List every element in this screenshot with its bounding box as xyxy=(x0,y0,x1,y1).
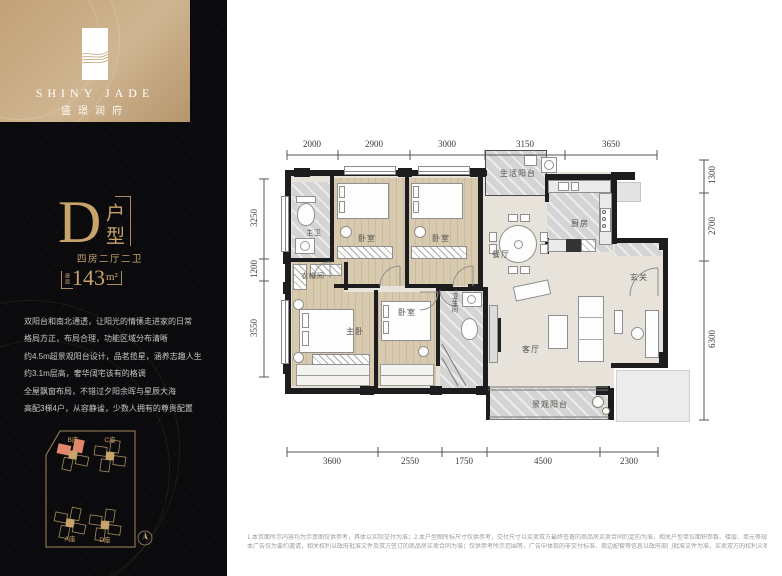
wall-segment xyxy=(374,290,378,388)
area-unit: m² xyxy=(106,271,118,283)
pillow-icon xyxy=(339,186,345,198)
wall-segment xyxy=(436,290,440,366)
chair-icon xyxy=(540,232,548,242)
dim-bottom-4: 4500 xyxy=(527,456,559,466)
brand-name-en: SHINY JADE xyxy=(0,86,190,101)
dim-top-2: 2900 xyxy=(358,139,390,149)
dim-right-2: 2700 xyxy=(707,210,717,242)
kitchen-sink-icon xyxy=(571,182,579,191)
unit-letter: D xyxy=(58,192,101,252)
wall-column xyxy=(470,168,486,177)
wall-column xyxy=(283,282,291,294)
dim-top-3: 3000 xyxy=(431,139,463,149)
brand-logo-icon xyxy=(82,28,108,80)
decor-bracket xyxy=(61,271,62,289)
ceiling-fan-icon xyxy=(414,226,426,238)
room-label-dining: 餐厅 xyxy=(492,249,510,260)
wardrobe-icon xyxy=(337,246,393,259)
unit-layout: 四房二厅二卫 xyxy=(77,251,143,265)
wall-segment xyxy=(478,176,483,288)
wall-column xyxy=(611,172,635,180)
window xyxy=(281,196,289,252)
toilet-icon xyxy=(297,203,315,226)
chair-icon xyxy=(540,244,548,254)
dim-right-3: 6300 xyxy=(707,323,717,355)
dim-bottom-2: 2550 xyxy=(394,456,426,466)
building-label-C: C座 xyxy=(100,434,120,444)
room-label-kitchen: 厨房 xyxy=(571,218,589,229)
burner-icon xyxy=(602,210,606,214)
dim-top-1: 2000 xyxy=(296,139,328,149)
counter-hatch xyxy=(581,239,596,252)
area-value: 143 xyxy=(72,265,105,291)
wall-segment xyxy=(483,287,488,388)
room-label-master-bath: 主卫 xyxy=(306,228,322,238)
basin-icon xyxy=(524,155,537,166)
description-line: 全屋飘窗布局，不错过夕阳余晖与星辰大海 xyxy=(24,383,209,400)
area-prefix: 建面 xyxy=(64,273,71,285)
pillow-icon xyxy=(413,201,419,213)
description: 双阳台和南北通透，让阳光的情愫走进家的日常 格局方正，布局合理，功能区域分布清晰… xyxy=(24,313,209,417)
wall-segment xyxy=(287,258,331,262)
pillow-icon xyxy=(302,313,309,328)
dim-top-4: 3150 xyxy=(509,139,541,149)
room-label-living: 客厅 xyxy=(522,344,540,355)
ceiling-fan-icon xyxy=(418,346,429,357)
room-label-master-bedroom: 主卧 xyxy=(346,326,364,337)
description-line: 约4.5m超景观阳台设计，品茗揽星，涵养志趣人生 xyxy=(24,348,209,365)
tv-cabinet-icon xyxy=(489,305,498,363)
wall-column xyxy=(596,386,610,395)
decor-bracket xyxy=(115,196,131,197)
entry-cabinet xyxy=(615,243,662,256)
description-line: 双阳台和南北通透，让阳光的情愫走进家的日常 xyxy=(24,313,209,330)
dining-plate-icon xyxy=(514,240,523,249)
decor-bracket xyxy=(121,271,122,285)
nightstand-icon xyxy=(293,299,304,310)
chair-icon xyxy=(508,214,518,222)
disclaimer-line-1: 1.本页面所示内容均为示意图仅供参考，具体以实际交付为准；2.本户型图所标尺寸仅… xyxy=(247,534,767,543)
brand-name-cn: 盛璟润府 xyxy=(0,102,190,117)
pillow-icon xyxy=(383,321,389,334)
window xyxy=(344,166,396,175)
dim-bottom-3: 1750 xyxy=(448,456,480,466)
window xyxy=(418,166,470,175)
wall-column xyxy=(476,386,490,395)
wall-column xyxy=(430,386,442,395)
burner-icon xyxy=(602,224,606,228)
wall-column xyxy=(659,238,668,250)
wall-segment xyxy=(405,176,409,288)
room-label-bedroom-1: 卧室 xyxy=(358,233,376,244)
sidebar: SHINY JADE 盛璟润府 D 户型 四房二厅二卫 建面 143 m² 双阳… xyxy=(0,0,227,576)
sofa-cushion-line xyxy=(578,317,604,318)
sofa-icon xyxy=(578,296,604,362)
tv-icon xyxy=(498,318,501,352)
wall-segment xyxy=(285,388,488,394)
building-label-D: D座 xyxy=(95,534,115,544)
desk-icon xyxy=(645,310,659,358)
ceiling-fan-icon xyxy=(340,226,352,238)
plant-icon xyxy=(602,407,610,415)
sink-basin-icon xyxy=(300,241,310,251)
wall-segment xyxy=(334,284,380,288)
sofa-cushion-line xyxy=(578,339,604,340)
decor-bracket xyxy=(130,196,131,246)
plant-icon xyxy=(592,396,604,408)
bay-window xyxy=(296,364,370,386)
toilet-icon xyxy=(461,318,478,340)
room-label-life-balcony: 生活阳台 xyxy=(495,168,541,179)
chair-icon xyxy=(508,266,518,274)
washer-drum-icon xyxy=(544,160,554,170)
dim-left-1: 3250 xyxy=(249,202,259,234)
description-line: 约3.1m层高，奢华阔宅该有的格调 xyxy=(24,365,209,382)
compass-icon xyxy=(138,531,152,545)
wall-column xyxy=(659,352,668,366)
kitchen-sink-icon xyxy=(558,182,569,191)
description-line: 高配3梯4户，从容静谧，少数人拥有的尊贵配置 xyxy=(24,400,209,417)
wall-column xyxy=(283,250,291,264)
pillow-icon xyxy=(302,331,309,346)
dim-left-2: 1200 xyxy=(249,253,259,285)
service-shaft xyxy=(615,182,641,202)
wall-segment xyxy=(436,287,483,291)
brand-header: SHINY JADE 盛璟润府 xyxy=(0,0,190,122)
wardrobe-icon xyxy=(312,354,370,365)
chair-icon xyxy=(489,232,497,242)
pillow-icon xyxy=(383,305,389,318)
window xyxy=(281,300,289,364)
room-label-public-bath: 卫生间 xyxy=(448,293,458,313)
dim-bottom-1: 3600 xyxy=(316,456,348,466)
pillow-icon xyxy=(413,186,419,198)
wall-segment xyxy=(344,262,348,290)
room-label-bedroom-2: 卧室 xyxy=(432,233,450,244)
wall-column xyxy=(294,168,310,177)
desk-chair-icon xyxy=(631,327,644,340)
room-label-view-balcony: 景观阳台 xyxy=(532,399,568,410)
cooktop-icon xyxy=(566,239,581,252)
adjacent-structure xyxy=(616,370,690,422)
unit-type-label: 户型 xyxy=(100,203,127,251)
wardrobe-icon xyxy=(411,246,467,259)
toilet-icon xyxy=(296,196,316,203)
room-label-entry: 玄关 xyxy=(630,272,648,283)
page: SHINY JADE 盛璟润府 D 户型 四房二厅二卫 建面 143 m² 双阳… xyxy=(0,0,782,576)
dim-right-1: 1300 xyxy=(707,159,717,191)
dim-top-5: 3650 xyxy=(595,139,627,149)
disclaimer-line-2: 本广告仅为要约邀请，相关权利以政府批准文件及双方签订的商品房买卖合同为准；仅供参… xyxy=(247,543,767,552)
wall-column xyxy=(360,386,374,395)
wall-segment xyxy=(663,238,668,368)
wall-column xyxy=(398,168,412,177)
chair-icon xyxy=(520,266,530,274)
chair-icon xyxy=(520,214,530,222)
sink-basin-icon xyxy=(467,295,476,304)
dim-left-3: 3550 xyxy=(249,312,259,344)
bay-window xyxy=(380,364,434,386)
description-line: 格局方正，布局合理，功能区域分布清晰 xyxy=(24,330,209,347)
room-label-bedroom-3: 卧室 xyxy=(398,307,416,318)
burner-icon xyxy=(602,217,606,221)
building-label-A: A座 xyxy=(60,533,80,543)
room-label-cloakroom: 衣帽间 xyxy=(301,271,325,281)
wall-segment xyxy=(330,176,334,262)
pillow-icon xyxy=(339,201,345,213)
nightstand-icon xyxy=(293,352,304,363)
coffee-table-icon xyxy=(548,315,568,349)
decor-bracket xyxy=(107,284,122,285)
dim-bottom-5: 2300 xyxy=(613,456,645,466)
building-label-B: B座 xyxy=(63,434,83,444)
shelf-icon xyxy=(614,310,623,334)
